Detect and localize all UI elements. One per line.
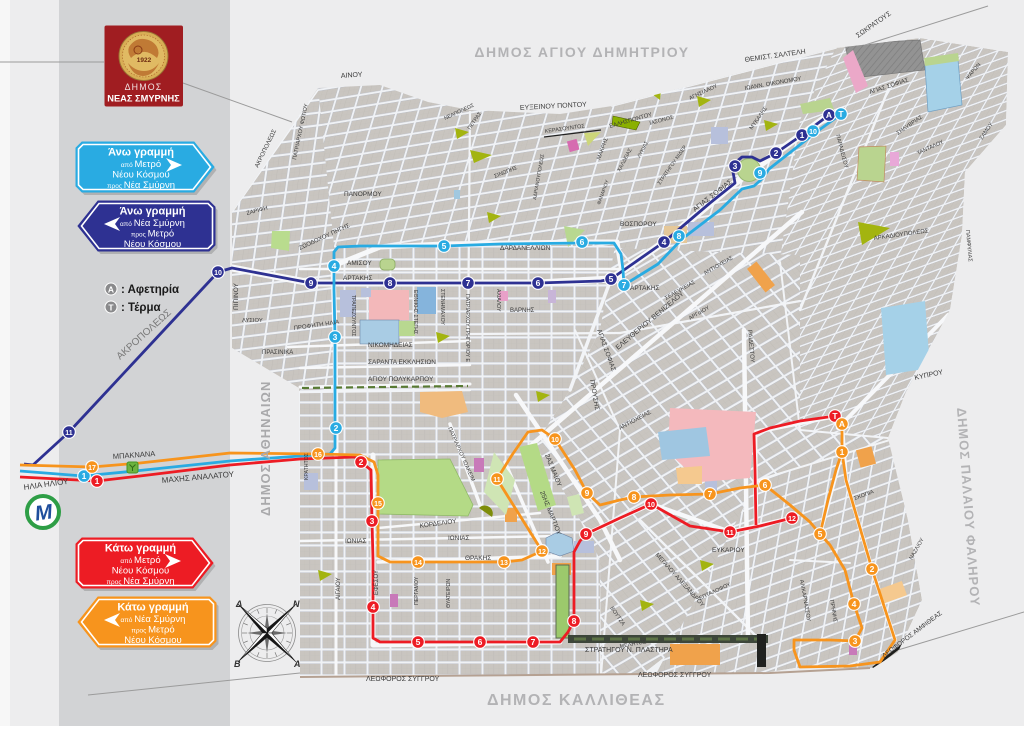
svg-text:15: 15 <box>374 501 382 508</box>
svg-text:ΔΗΜΟΣ ΑΘΗΝΑΙΩΝ: ΔΗΜΟΣ ΑΘΗΝΑΙΩΝ <box>258 381 273 516</box>
svg-text:13: 13 <box>500 560 508 567</box>
svg-text:ΔΑΡΔΑΝΕΛΛΙΩΝ: ΔΑΡΔΑΝΕΛΛΙΩΝ <box>500 245 551 252</box>
svg-text:3: 3 <box>853 636 858 646</box>
svg-text:ΠΡΑΣΙΝΙΚΑ: ΠΡΑΣΙΝΙΚΑ <box>262 350 293 356</box>
svg-text:6: 6 <box>763 480 768 490</box>
svg-text:10: 10 <box>214 270 222 277</box>
svg-text:9: 9 <box>758 168 763 178</box>
svg-text:12: 12 <box>788 516 796 523</box>
svg-text:Κάτω γραμμή: Κάτω γραμμή <box>117 602 189 614</box>
svg-text:16: 16 <box>314 452 322 459</box>
svg-text:ΠΑΤΡΙΑΡΧΟΥ ΓΡΗΓΟΡΙΟΥ Ε: ΠΑΤΡΙΑΡΧΟΥ ΓΡΗΓΟΡΙΟΥ Ε <box>464 294 470 362</box>
svg-text:Ν: Ν <box>293 599 300 609</box>
svg-text:ΔΗΜΟΣ: ΔΗΜΟΣ <box>125 82 163 92</box>
svg-text:Νέου Κόσμου: Νέου Κόσμου <box>112 566 170 577</box>
svg-text:2: 2 <box>359 457 364 467</box>
svg-text:ΠΕΡΓΑΜΟΥ: ΠΕΡΓΑΜΟΥ <box>414 576 420 605</box>
svg-text:9: 9 <box>585 488 590 498</box>
svg-text:Α: Α <box>108 285 114 295</box>
svg-text:ΠΙΠΙΝΟΥ: ΠΙΠΙΝΟΥ <box>233 282 240 310</box>
svg-text:12: 12 <box>538 549 546 556</box>
svg-text:10: 10 <box>809 129 817 136</box>
svg-text:Άνω γραμμή: Άνω γραμμή <box>108 147 174 159</box>
svg-text:4: 4 <box>662 237 667 247</box>
svg-text:ΕΥΚΑΡΙΟΥ: ΕΥΚΑΡΙΟΥ <box>712 547 745 554</box>
svg-text:Α: Α <box>293 659 301 669</box>
svg-text:Β: Β <box>234 659 241 669</box>
svg-text:ΚΡΑΤΗΤΟΣ: ΚΡΑΤΗΤΟΣ <box>304 453 310 480</box>
svg-text:5: 5 <box>818 529 823 539</box>
svg-text:2: 2 <box>334 423 339 433</box>
svg-text:A: A <box>826 110 832 120</box>
svg-text:Τ: Τ <box>108 303 114 313</box>
svg-text:1: 1 <box>840 447 845 457</box>
svg-text:10: 10 <box>647 502 655 509</box>
svg-text:1: 1 <box>82 471 87 481</box>
svg-text:3: 3 <box>333 332 338 342</box>
svg-text:1: 1 <box>95 476 100 486</box>
svg-text:6: 6 <box>478 637 483 647</box>
svg-text:A: A <box>839 419 845 429</box>
svg-text:7: 7 <box>531 637 536 647</box>
svg-text:ΔΗΜΟΣ ΑΓΙΟΥ ΔΗΜΗΤΡΙΟΥ: ΔΗΜΟΣ ΑΓΙΟΥ ΔΗΜΗΤΡΙΟΥ <box>474 44 689 60</box>
svg-text:10: 10 <box>551 437 559 444</box>
svg-text:: Αφετηρία: : Αφετηρία <box>121 284 179 296</box>
svg-text:ΠΑΝΟΡΜΟΥ: ΠΑΝΟΡΜΟΥ <box>344 191 382 198</box>
svg-text:4: 4 <box>852 599 857 609</box>
svg-text:7: 7 <box>466 278 471 288</box>
svg-text:8: 8 <box>388 278 393 288</box>
svg-text:5: 5 <box>442 241 447 251</box>
svg-text:ΘΡΑΚΗΣ: ΘΡΑΚΗΣ <box>465 555 491 562</box>
svg-text:ΑΡΤΑΚΗΣ: ΑΡΤΑΚΗΣ <box>343 275 373 282</box>
svg-text:ΙΩΝΙΑΣ: ΙΩΝΙΑΣ <box>345 538 367 545</box>
svg-text:: Τέρμα: : Τέρμα <box>121 302 161 314</box>
svg-text:8: 8 <box>632 492 637 502</box>
svg-text:5: 5 <box>416 637 421 647</box>
svg-text:3: 3 <box>370 516 375 526</box>
svg-text:ΣΑΡΑΝΤΑ ΕΚΚΛΗΣΙΩΝ: ΣΑΡΑΝΤΑ ΕΚΚΛΗΣΙΩΝ <box>368 359 436 366</box>
svg-text:ΑΧΙΑΛΟΥ: ΑΧΙΑΛΟΥ <box>495 289 501 312</box>
svg-text:ΙΩΝΙΑΣ: ΙΩΝΙΑΣ <box>448 535 470 542</box>
svg-text:ΕΘΝΙΚΗΣ ΣΤΕΓΗΣ: ΕΘΝΙΚΗΣ ΣΤΕΓΗΣ <box>412 290 418 334</box>
svg-text:T: T <box>838 109 844 119</box>
svg-text:ΕΦΕΣΟΥ: ΕΦΕΣΟΥ <box>374 570 380 595</box>
svg-text:1: 1 <box>800 130 805 140</box>
svg-text:17: 17 <box>88 465 96 472</box>
svg-text:ΑΙΓΑΙΟΥ: ΑΙΓΑΙΟΥ <box>336 577 342 600</box>
svg-text:ΝΙΚΟΜΗΔΕΙΑΣ: ΝΙΚΟΜΗΔΕΙΑΣ <box>368 342 413 349</box>
svg-text:3: 3 <box>733 161 738 171</box>
svg-text:ΘΥΑΤΕΙΡΩΝ: ΘΥΑΤΕΙΡΩΝ <box>446 579 452 608</box>
svg-text:ΒΑΡΝΗΣ: ΒΑΡΝΗΣ <box>510 308 535 314</box>
svg-text:9: 9 <box>309 278 314 288</box>
svg-text:5: 5 <box>609 274 614 284</box>
svg-text:7: 7 <box>622 280 627 290</box>
svg-text:Δ: Δ <box>235 599 242 609</box>
svg-text:ΛΥΣΙΟΥ: ΛΥΣΙΟΥ <box>242 318 263 324</box>
svg-text:7: 7 <box>708 489 713 499</box>
svg-text:Άνω γραμμή: Άνω γραμμή <box>120 206 186 218</box>
svg-text:6: 6 <box>580 237 585 247</box>
svg-text:1922: 1922 <box>137 57 152 64</box>
svg-text:ΔΗΜΟΣ ΚΑΛΛΙΘΕΑΣ: ΔΗΜΟΣ ΚΑΛΛΙΘΕΑΣ <box>487 692 666 709</box>
svg-text:ΒΟΣΠΟΡΟΥ: ΒΟΣΠΟΡΟΥ <box>620 221 657 228</box>
svg-text:ΑΡΤΑΚΗΣ: ΑΡΤΑΚΗΣ <box>630 285 660 292</box>
svg-text:ΑΜΙΣΟΥ: ΑΜΙΣΟΥ <box>347 260 372 267</box>
svg-text:6: 6 <box>536 278 541 288</box>
svg-text:4: 4 <box>332 261 337 271</box>
svg-text:Κάτω γραμμή: Κάτω γραμμή <box>105 543 177 555</box>
svg-text:8: 8 <box>677 231 682 241</box>
svg-text:14: 14 <box>414 560 422 567</box>
svg-text:Νέου Κόσμου: Νέου Κόσμου <box>124 239 182 250</box>
svg-text:Νέου Κόσμου: Νέου Κόσμου <box>112 170 170 181</box>
svg-text:11: 11 <box>493 477 501 484</box>
svg-text:2: 2 <box>870 564 875 574</box>
svg-text:4: 4 <box>371 602 376 612</box>
svg-text:Νέου Κόσμου: Νέου Κόσμου <box>124 635 182 646</box>
svg-text:ΑΓΙΟΥ ΠΟΛΥΚΑΡΠΟΥ: ΑΓΙΟΥ ΠΟΛΥΚΑΡΠΟΥ <box>368 376 434 383</box>
svg-text:2: 2 <box>774 148 779 158</box>
svg-text:ΣΤΕΝΗΜΑΧΟΥ: ΣΤΕΝΗΜΑΧΟΥ <box>439 289 445 325</box>
svg-text:ΛΕΩΦΟΡΟΣ ΣΥΓΓΡΟΥ: ΛΕΩΦΟΡΟΣ ΣΥΓΓΡΟΥ <box>638 672 712 679</box>
svg-text:9: 9 <box>584 529 589 539</box>
svg-text:ΝΕΑΣ ΣΜΥΡΝΗΣ: ΝΕΑΣ ΣΜΥΡΝΗΣ <box>107 94 180 104</box>
svg-text:ΛΕΩΦΟΡΟΣ ΣΥΓΓΡΟΥ: ΛΕΩΦΟΡΟΣ ΣΥΓΓΡΟΥ <box>366 676 440 683</box>
svg-text:11: 11 <box>65 430 73 437</box>
svg-text:8: 8 <box>572 616 577 626</box>
svg-text:ΤΡΑΠΕΖΟΥΝΤΟΣ: ΤΡΑΠΕΖΟΥΝΤΟΣ <box>350 295 356 336</box>
svg-text:11: 11 <box>726 530 734 537</box>
